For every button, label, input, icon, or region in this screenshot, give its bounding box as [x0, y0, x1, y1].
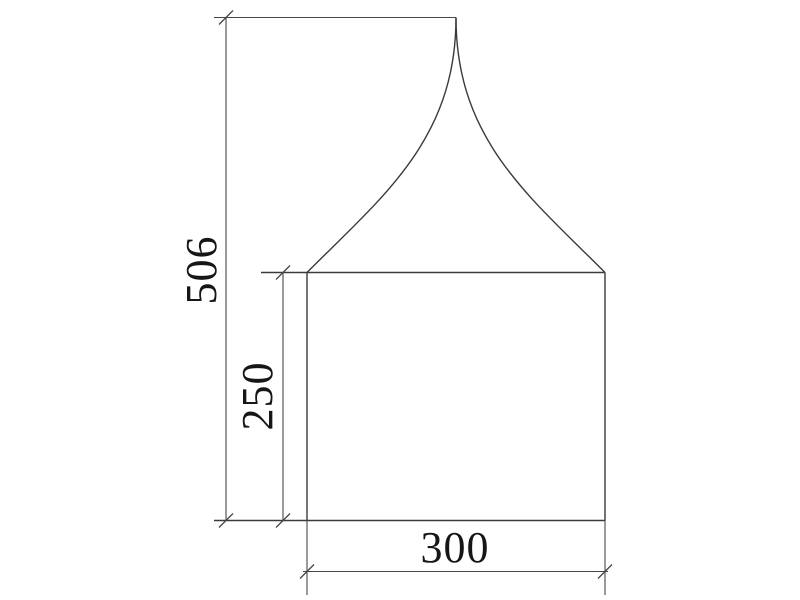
dimension-label-base-width: 300 — [421, 523, 490, 572]
tent-elevation-drawing: 506 250 300 — [0, 0, 800, 600]
dimension-label-wall-height: 250 — [233, 362, 282, 431]
tent-outline — [214, 18, 605, 521]
dimension-total-height: 506 — [177, 11, 456, 528]
roof-curve-right — [456, 18, 605, 273]
dimension-base-width: 300 — [300, 521, 612, 596]
dimension-wall-height: 250 — [233, 266, 290, 528]
roof-curve-left — [307, 18, 456, 273]
dimension-label-total-height: 506 — [177, 236, 226, 305]
drawing-canvas: 506 250 300 — [0, 0, 800, 600]
